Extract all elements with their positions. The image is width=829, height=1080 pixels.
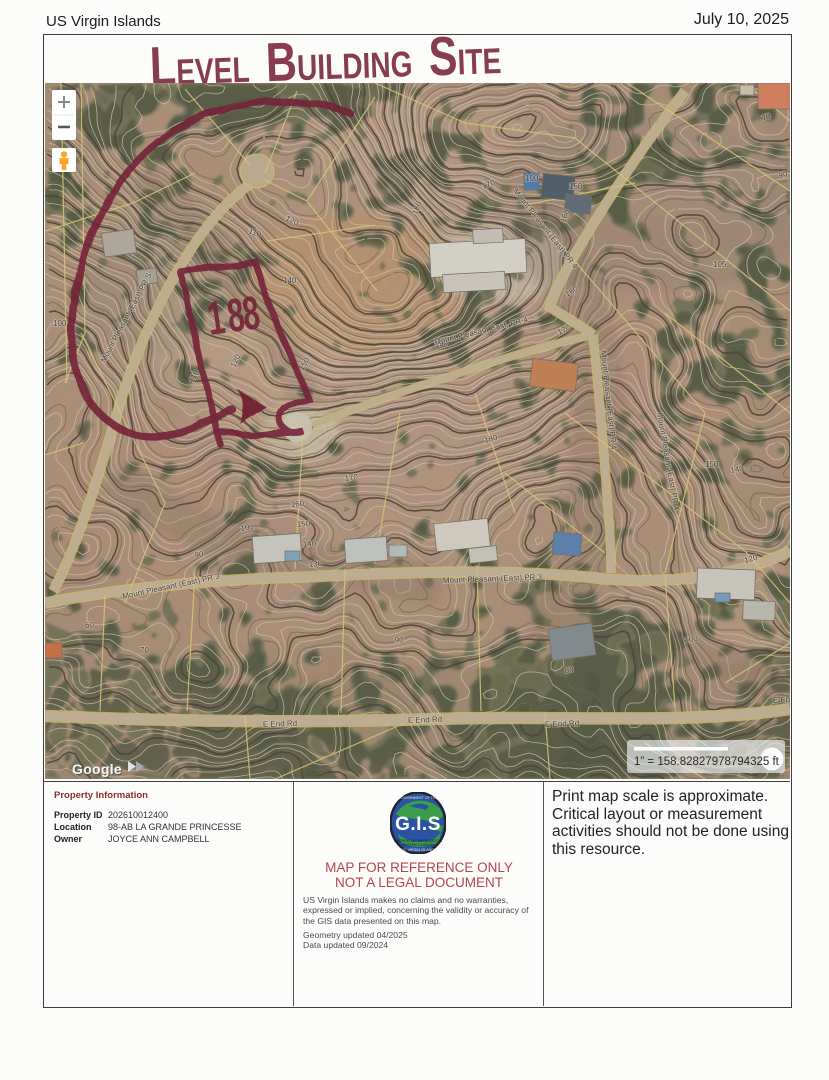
svg-text:U.S. VIRGIN ISLANDS: U.S. VIRGIN ISLANDS (400, 848, 437, 852)
svg-text:188: 188 (204, 287, 262, 346)
svg-text:G.I.S: G.I.S (395, 814, 441, 835)
svg-text:Google: Google (72, 761, 122, 777)
svg-text:1” = 158.82827978794325 ft: 1” = 158.82827978794325 ft (634, 756, 780, 768)
svg-text:SYSTEM DIVISION: SYSTEM DIVISION (402, 843, 434, 847)
svg-text:GOVERNMENT OF THE: GOVERNMENT OF THE (398, 796, 438, 800)
